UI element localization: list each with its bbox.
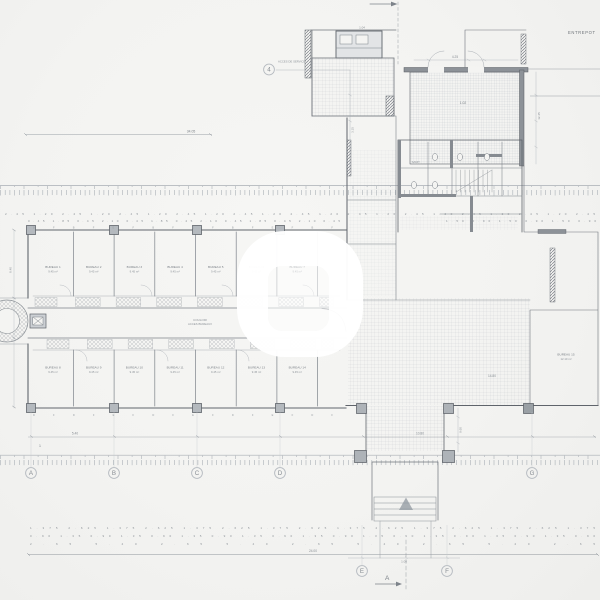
room-label: BUREAU 4 [167,265,183,269]
entrepot-label: ENTREPOT [568,30,596,35]
hatched-wall [550,248,555,302]
room-area: 9.45 m² [48,269,58,273]
section-arrow-icon [396,582,402,587]
grid-bubble-4: 4 [264,64,275,75]
grid-bubble-label: D [278,470,283,477]
room-label: BUREAU 9 [86,366,102,370]
dim-row-bottom1: 1.375 2.625 1.375 2.625 1.375 2.625 1.37… [30,526,595,530]
dim-label-stair: 9.60 [459,427,463,433]
room-area: 9.45 m² [211,370,221,374]
grid-bubble-label: B [112,470,116,477]
room-label: BUREAU 11 [167,366,184,370]
grid-bubble-b: B [109,468,120,479]
hall-area-label: 14.80 [488,374,496,378]
axis-tick-label: 1 [39,444,41,448]
grid-bubble-label: C [195,470,200,477]
overall-dimension-label: 24.00 [309,549,317,553]
dim-label-top-right: 4.25 [452,55,458,59]
top-dimension-label: 34.05 [187,130,196,134]
room-area: 9.45 m² [292,370,302,374]
service-entry-note: ACCES DE SERVICE [278,60,305,64]
grid-bubble-a: A [26,468,37,479]
dim-row-top2: 0.45 1.85 0.45 2.10 0.45 1.85 0.45 2.10 … [28,219,340,223]
stair-wing: 9.60 [355,404,463,590]
room-area: 9.45 m² [252,370,262,374]
sanitary-label: SANIT. [412,160,421,164]
grid-bubble-label: G [530,470,535,477]
grid-bubble-label: A [29,470,34,477]
room-area: 9.45 m² [170,370,180,374]
dim-label-left: 8.40 [9,267,13,273]
room-area: 9.45 m² [170,269,180,273]
room-label: BUREAU 14 [289,366,306,370]
grid-bubble-label: E [360,568,364,575]
room-area: 9.45 m² [130,269,140,273]
ruler-band-top [0,186,600,196]
architectural-floorplan: 2.45 1.20 2.45 1.20 2.45 1.20 2.45 1.20 … [0,0,600,600]
vestibule-floor [366,406,444,451]
dim-label-right: 12.45 [537,112,541,120]
room-label: BUREAU 13 [248,366,265,370]
section-label: A [385,575,390,582]
door-swing-arcs [428,51,484,67]
dim-row-bottom2: 0.90 1.35 0.90 1.35 0.90 1.35 0.90 1.35 … [30,534,595,538]
room-labels-bottom-row: BUREAU 8 9.45 m² BUREAU 9 9.45 m² BUREAU… [45,366,306,374]
room-label: BUREAU 8 [45,366,61,370]
grid-bubble-d: D [275,468,286,479]
dim-label-ef: 1.00 [401,560,407,564]
dim-label-v4: 3.15 [351,127,355,133]
hatched-wall [305,30,311,78]
room-label: BUREAU 5 [208,265,224,269]
tiled-room [312,58,394,116]
grid-bubble-label: 4 [267,67,271,74]
grid-bubble-f: F [442,566,453,577]
grid-bubble-label: F [445,568,449,575]
room-area: 9.45 m² [48,370,58,374]
section-marker-a: A [375,575,402,586]
watermark-logo [237,231,363,357]
dim-label-a: 5.40 [72,432,78,436]
hall-room-code: 1.02 [460,101,467,105]
room-area: 9.45 m² [211,269,221,273]
ruler-band-bottom [0,455,600,465]
grid-bubble-c: C [192,468,203,479]
room-area: 12.10 m² [560,357,571,361]
grid-bubble-g: G [527,468,538,479]
grid-bubble-e: E [357,566,368,577]
room-area: 9.45 m² [130,370,140,374]
dim-row-bottom3: 2.65 5.40 2.65 5.40 2.65 5.40 2.65 5.40 … [30,542,595,546]
room-label: BUREAU 12 [207,366,224,370]
large-hall-room [410,72,520,164]
window-tags-top: B F B F E F B F E F B F E F B F [33,226,333,230]
room-label: BUREAU 10 [126,366,143,370]
tiled-hall-floor [348,298,530,405]
stair-direction-arrow-icon [399,498,413,511]
floor-plan-linework: 2.45 1.20 2.45 1.20 2.45 1.20 2.45 1.20 … [0,0,600,600]
room-label: BUREAU 3 [127,265,143,269]
partitions-bottom-row [73,350,317,406]
upper-room-code: 1.04 [359,26,365,30]
room-label: BUREAU 1 [45,265,61,269]
room-label: BUREAU 15 [557,353,574,357]
room-label: BUREAU 2 [86,265,102,269]
entrepot-annotation: ENTREPOT [524,30,600,96]
room-area: 9.45 m² [89,269,99,273]
corridor-sublabel: ACCES BUREAUX [188,322,212,326]
window-tags-bottom: D F D F E F D F E F D F E F D F [33,413,333,417]
room-area: 9.45 m² [89,370,99,374]
entry-arrow-icon [391,2,398,7]
